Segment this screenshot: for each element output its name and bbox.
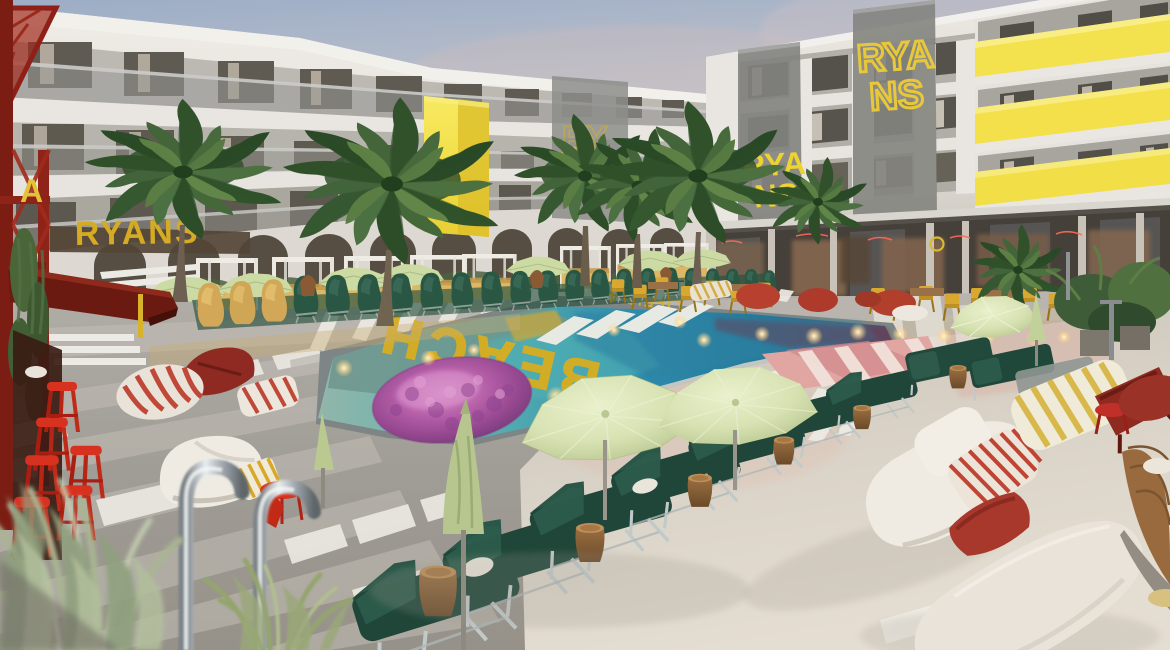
svg-text:A: A	[20, 173, 43, 209]
svg-text:NS: NS	[868, 73, 925, 120]
